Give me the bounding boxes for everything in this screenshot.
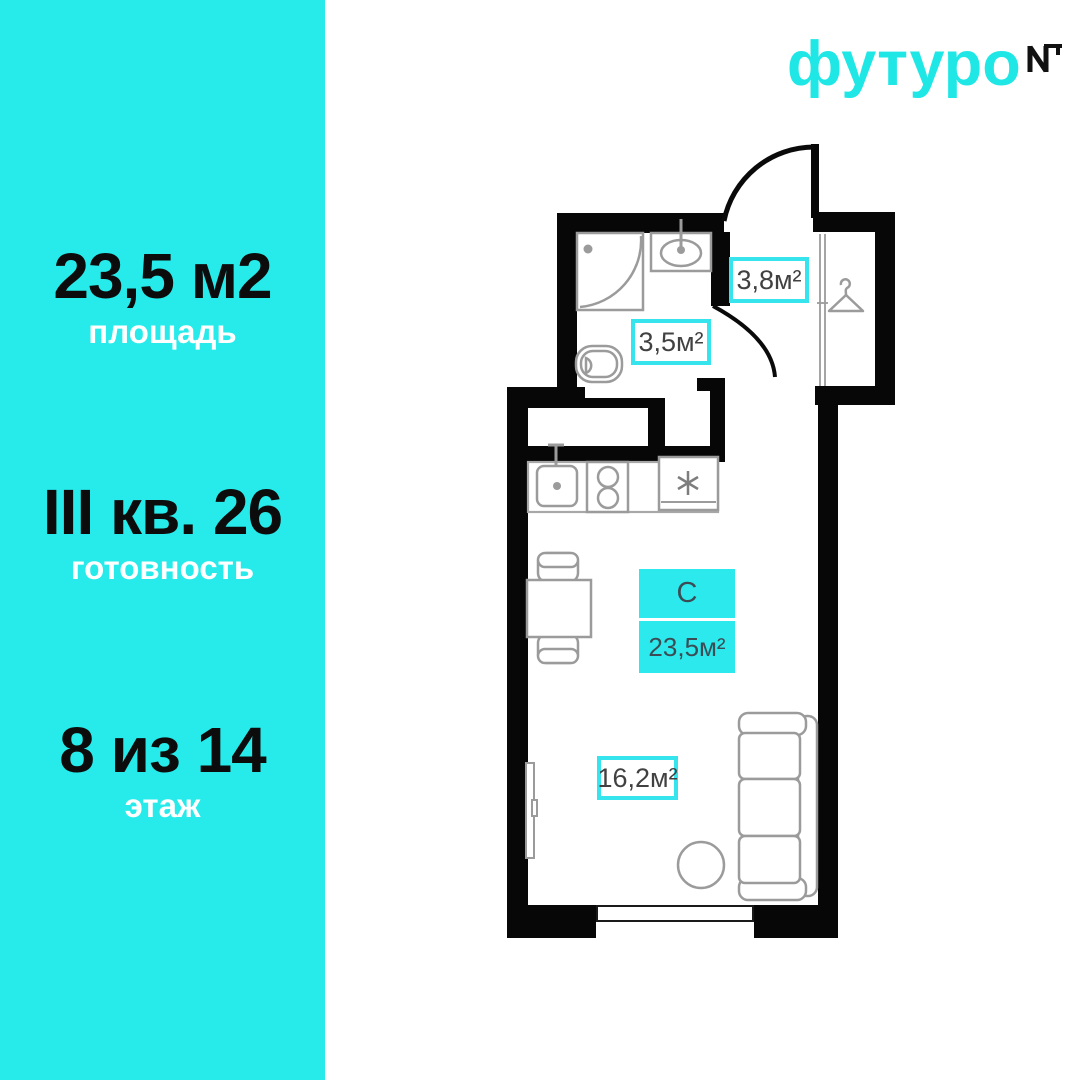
unit-type: С	[639, 569, 735, 618]
area-label-hallway: 3,8м²	[729, 257, 809, 303]
closet-door-lines	[817, 234, 828, 386]
area-label-bathroom: 3,5м²	[631, 319, 711, 365]
stove-icon	[587, 462, 628, 512]
bathroom-door-arc	[713, 306, 775, 377]
toilet-icon	[576, 346, 622, 382]
pouf-icon	[678, 842, 724, 888]
dining-set-icon	[527, 553, 591, 663]
hanger-icon	[829, 279, 863, 311]
shower-icon	[577, 233, 643, 310]
entrance-door-icon	[724, 144, 819, 221]
apartment-card: 23,5 м2 площадь III кв. 26 готовность 8 …	[0, 0, 1080, 1080]
washer-icon	[659, 457, 718, 510]
window	[597, 906, 753, 921]
unit-total-area: 23,5м²	[639, 621, 735, 673]
floorplan	[0, 0, 1080, 1080]
sofa-icon	[739, 713, 817, 900]
area-label-living-room: 16,2м²	[597, 756, 678, 800]
tv-icon	[526, 763, 537, 858]
unit-badge: С 23,5м²	[639, 569, 735, 673]
